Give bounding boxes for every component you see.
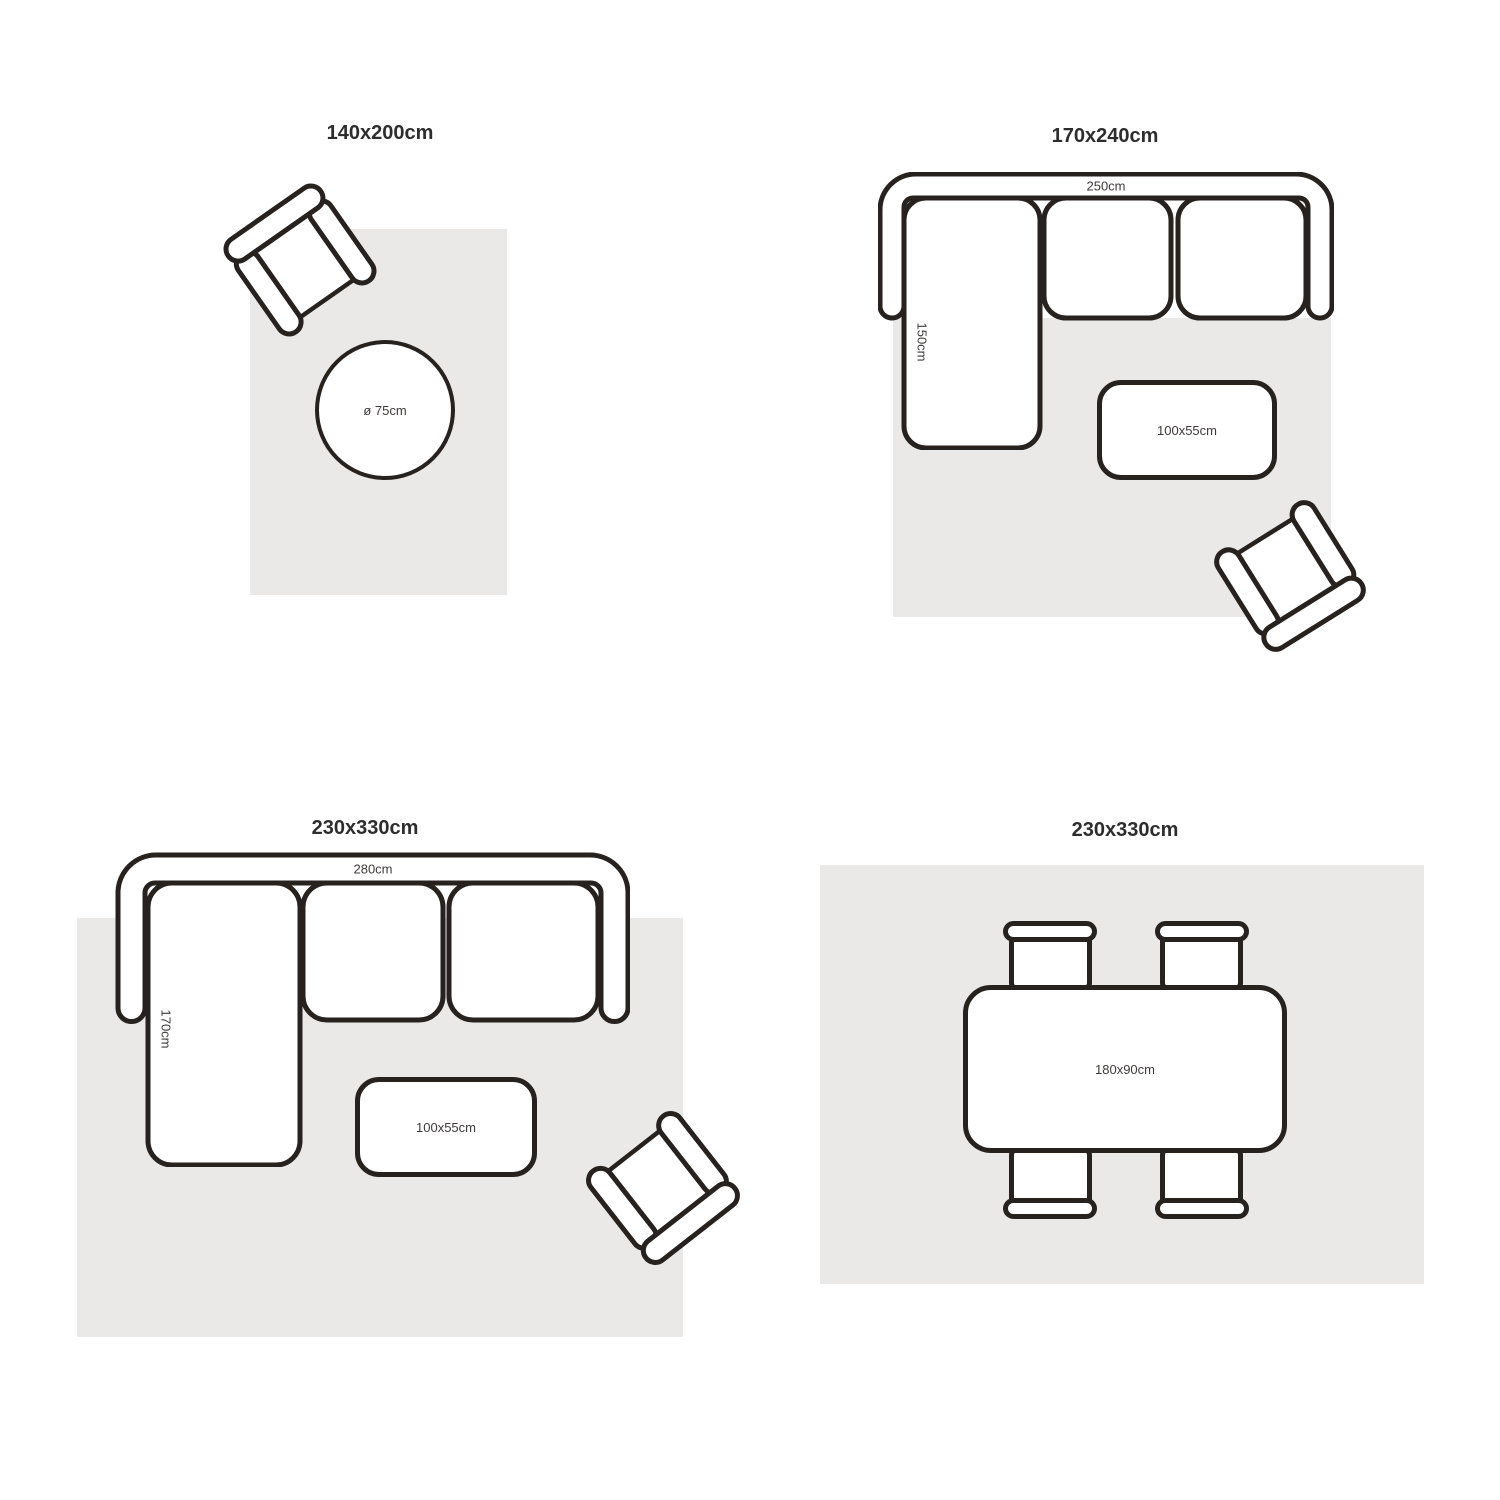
dining-chair-backrest — [1155, 921, 1249, 942]
dining-table: 180x90cm — [963, 985, 1287, 1153]
size-title-170x240: 170x240cm — [1052, 123, 1159, 149]
sofa-width-dimension: 280cm — [353, 862, 392, 877]
dining-table-dimension: 180x90cm — [1095, 1062, 1155, 1077]
dining-chair-backrest — [1155, 1198, 1249, 1219]
coffee-table-dimension: 100x55cm — [1157, 423, 1217, 438]
rug-size-guide: 140x200cm 73cm 74cm ø 75cm 170x240cm 250… — [0, 0, 1500, 1500]
size-title-230x330-right: 230x330cm — [1072, 817, 1179, 843]
sofa-chaise-dimension: 150cm — [915, 322, 930, 361]
coffee-table: 100x55cm — [1097, 380, 1277, 480]
dining-chair-backrest — [1003, 1198, 1097, 1219]
size-title-230x330-left: 230x330cm — [312, 815, 419, 841]
sofa-cushion — [449, 883, 598, 1020]
sofa-cushion — [1178, 198, 1306, 318]
round-table-dimension: ø 75cm — [363, 403, 406, 418]
sofa-width-dimension: 250cm — [1086, 179, 1125, 194]
dining-chair-backrest — [1003, 921, 1097, 942]
coffee-table: 100x55cm — [355, 1077, 537, 1177]
sofa-cushion — [1044, 198, 1171, 318]
sofa-cushion — [303, 883, 443, 1020]
sofa-chaise-dimension: 170cm — [159, 1009, 174, 1048]
round-side-table: ø 75cm — [315, 340, 455, 480]
size-title-140x200: 140x200cm — [327, 120, 434, 146]
coffee-table-dimension: 100x55cm — [416, 1120, 476, 1135]
